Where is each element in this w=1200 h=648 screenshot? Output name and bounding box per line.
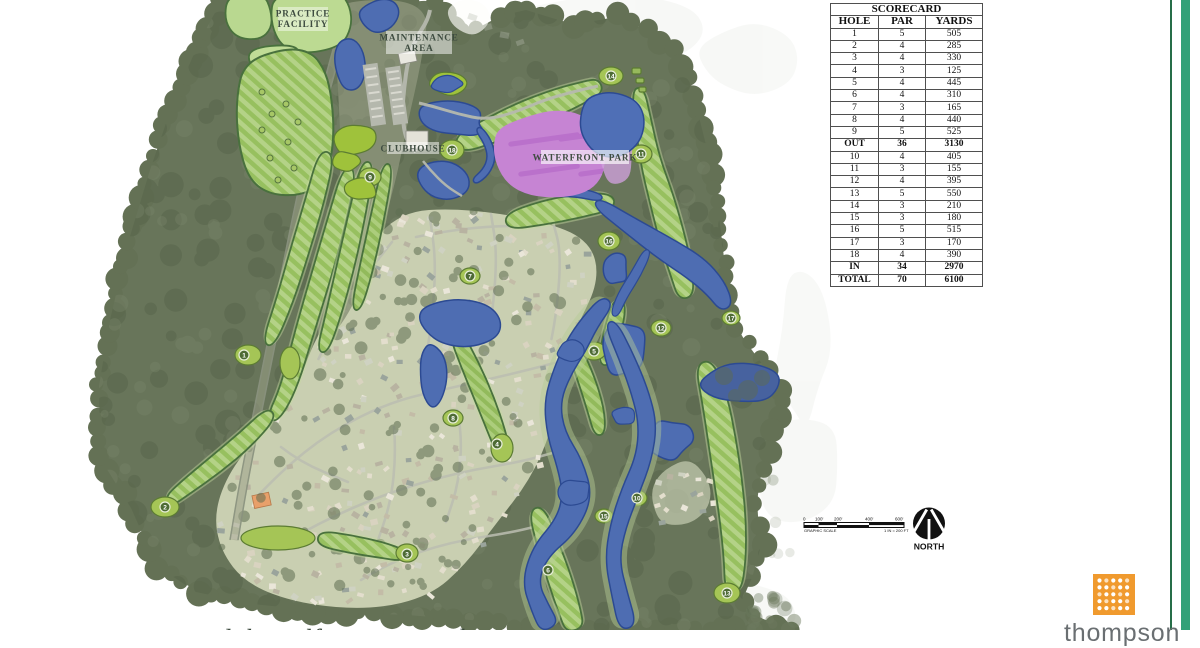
svg-text:200': 200' bbox=[834, 517, 843, 522]
svg-text:400': 400' bbox=[865, 517, 874, 522]
svg-text:100': 100' bbox=[815, 517, 824, 522]
svg-text:600': 600' bbox=[895, 517, 904, 522]
svg-text:and the golf community dist: and the golf community dist bbox=[190, 624, 491, 630]
svg-text:GRAPHIC SCALE: GRAPHIC SCALE bbox=[804, 528, 837, 533]
svg-text:NORTH: NORTH bbox=[914, 542, 945, 552]
svg-text:0: 0 bbox=[803, 517, 806, 522]
svg-text:1 IN = 200 FT: 1 IN = 200 FT bbox=[884, 528, 909, 533]
